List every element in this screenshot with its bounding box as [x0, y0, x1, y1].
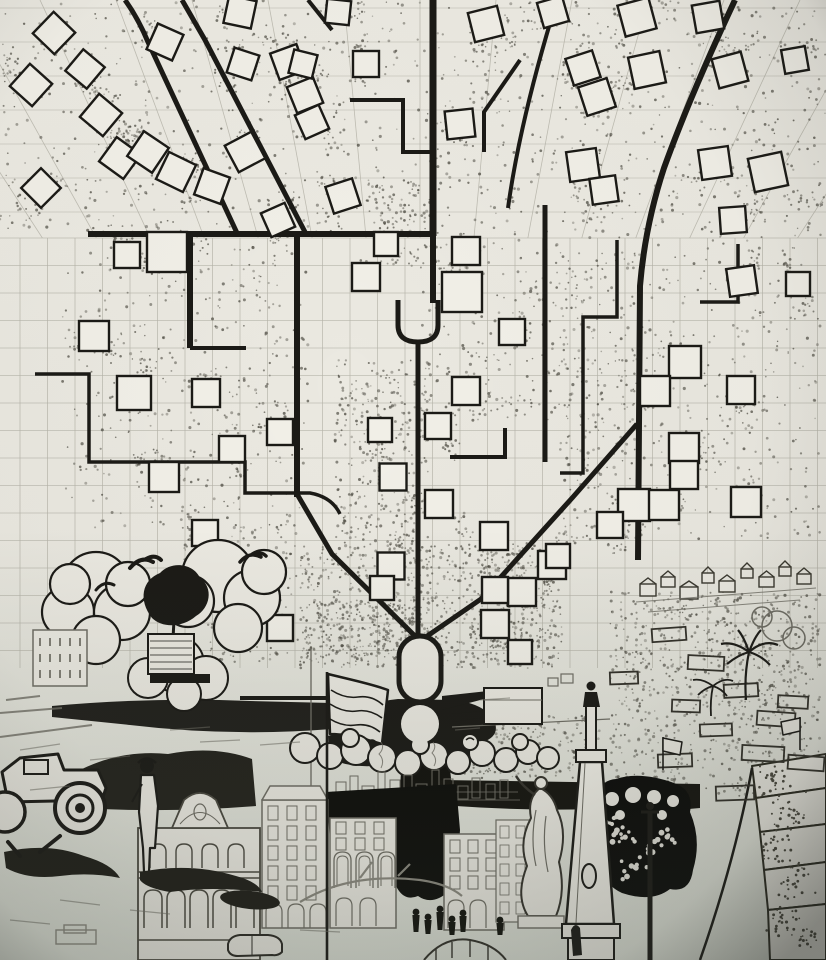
photographed-ink-drawing — [0, 0, 826, 960]
urban-plan-sketch-canvas — [0, 0, 826, 960]
